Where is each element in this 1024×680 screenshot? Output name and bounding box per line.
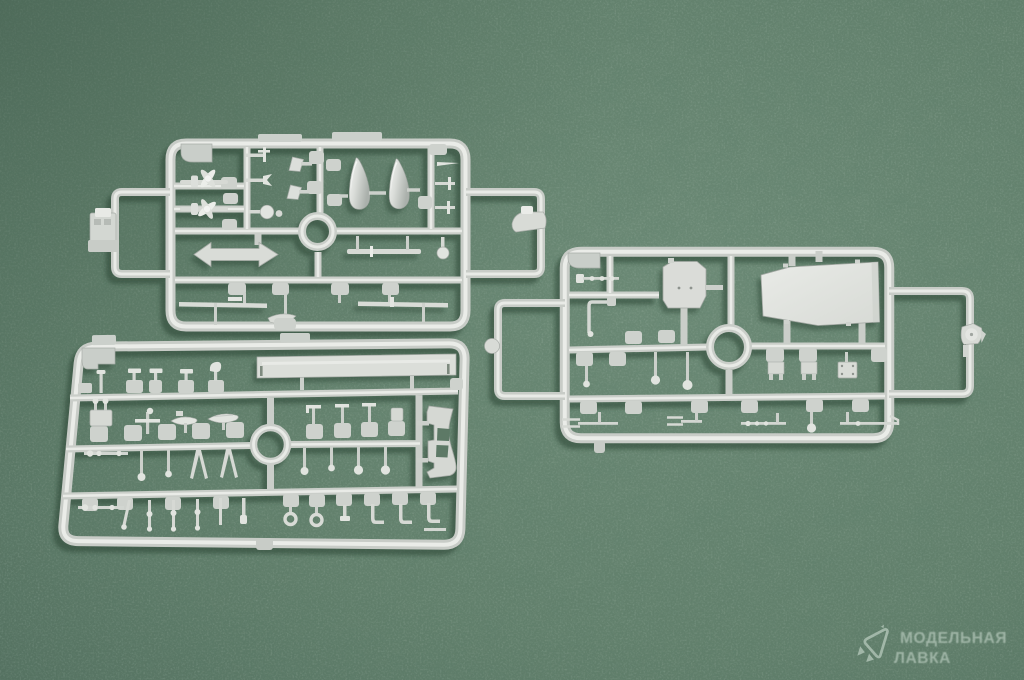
svg-text:МОДЕЛЬНАЯ: МОДЕЛЬНАЯ bbox=[900, 630, 1007, 647]
svg-text:ЛАВКА: ЛАВКА bbox=[894, 650, 951, 667]
